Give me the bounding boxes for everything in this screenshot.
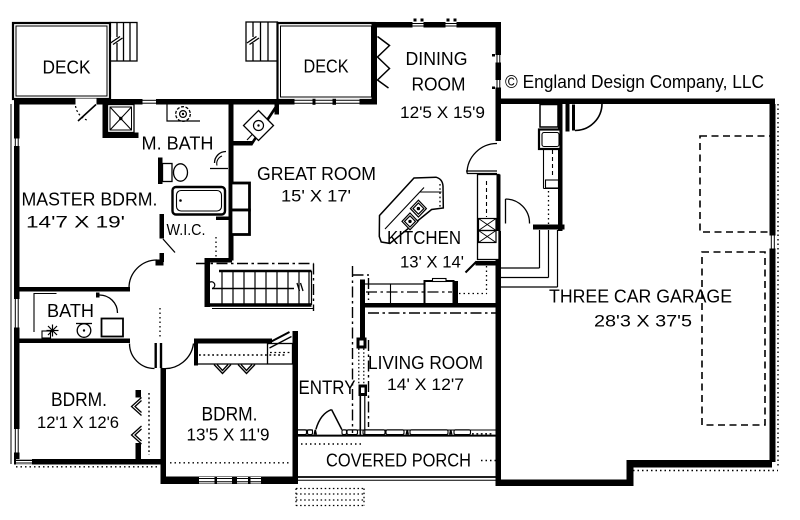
svg-text:GREAT ROOM: GREAT ROOM — [257, 164, 376, 184]
svg-text:BDRM.: BDRM. — [202, 405, 258, 426]
svg-text:28'3 X 37'5: 28'3 X 37'5 — [594, 312, 692, 331]
svg-text:LIVING ROOM: LIVING ROOM — [368, 353, 483, 373]
svg-text:DECK: DECK — [304, 57, 349, 77]
svg-text:MASTER BDRM.: MASTER BDRM. — [22, 190, 158, 210]
svg-text:15' X 17': 15' X 17' — [281, 187, 351, 206]
svg-text:BATH: BATH — [47, 301, 94, 321]
svg-text:BDRM.: BDRM. — [51, 390, 107, 411]
svg-text:13' X 14': 13' X 14' — [400, 253, 464, 272]
svg-text:14' X 12'7: 14' X 12'7 — [387, 375, 464, 394]
svg-text:12'1 X 12'6: 12'1 X 12'6 — [37, 413, 119, 432]
svg-text:W.I.C.: W.I.C. — [167, 222, 206, 239]
svg-text:KITCHEN: KITCHEN — [387, 228, 461, 248]
svg-text:DINING: DINING — [406, 49, 468, 69]
svg-text:M. BATH: M. BATH — [142, 134, 214, 154]
svg-text:DECK: DECK — [43, 58, 91, 78]
svg-text:12'5 X 15'9: 12'5 X 15'9 — [400, 103, 485, 122]
svg-text:THREE CAR GARAGE: THREE CAR GARAGE — [549, 287, 732, 307]
svg-text:14'7 X 19': 14'7 X 19' — [26, 213, 125, 232]
svg-text:13'5 X 11'9: 13'5 X 11'9 — [187, 425, 270, 445]
svg-text:ROOM: ROOM — [412, 75, 466, 95]
svg-text:COVERED PORCH: COVERED PORCH — [326, 451, 471, 471]
svg-text:© England Design Company, LLC: © England Design Company, LLC — [505, 71, 764, 92]
svg-text:ENTRY: ENTRY — [299, 378, 356, 399]
